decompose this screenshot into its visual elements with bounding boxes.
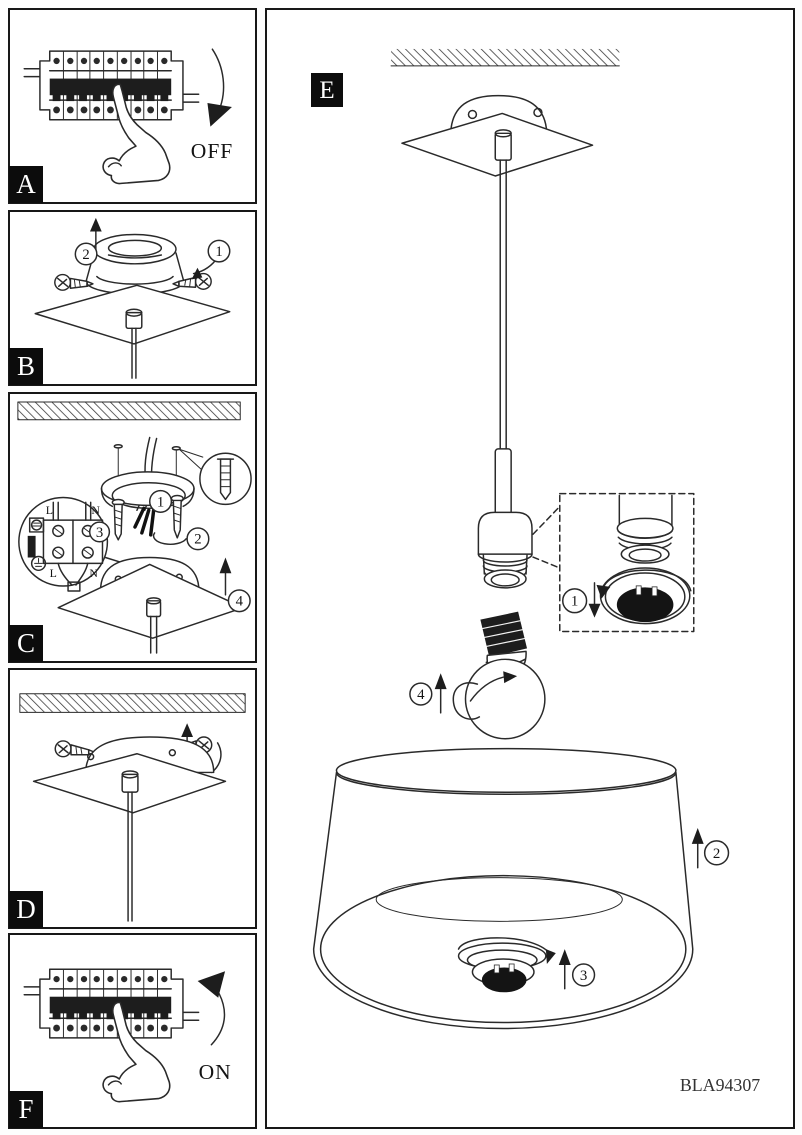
terminal-n-top: N bbox=[91, 503, 100, 517]
ceiling-plate-icon bbox=[402, 113, 593, 176]
screw-right-icon bbox=[173, 274, 211, 290]
rotate-on-arrow-icon bbox=[198, 971, 225, 1044]
step-4-badge: 4 bbox=[228, 590, 250, 612]
ceiling-plate-icon bbox=[34, 754, 226, 921]
shade-ring-detail bbox=[589, 568, 691, 624]
pendant-cord bbox=[495, 160, 511, 514]
svg-text:3: 3 bbox=[580, 968, 587, 984]
on-label: ON bbox=[199, 1060, 232, 1084]
terminal-l-top: L bbox=[46, 503, 53, 517]
step-1-badge: 1 bbox=[208, 240, 230, 262]
terminal-n-bottom: N bbox=[89, 566, 98, 580]
panel-c-illustration: 1 2 L N L bbox=[10, 394, 255, 661]
panel-a: OFF A bbox=[8, 8, 257, 204]
step-1-badge: 1 bbox=[150, 491, 172, 513]
light-bulb-icon bbox=[435, 612, 545, 739]
svg-text:4: 4 bbox=[417, 687, 425, 703]
raise-shade-arrow-icon bbox=[692, 828, 704, 868]
step-2-badge: 2 bbox=[75, 243, 97, 265]
step-1-badge: 1 bbox=[563, 589, 587, 613]
panel-b-label: B bbox=[9, 348, 43, 385]
wall-plug-detail bbox=[200, 453, 251, 504]
ceiling-hatch bbox=[391, 49, 619, 66]
instruction-sheet-page: { "panel_a": { "label": "A", "state_labe… bbox=[0, 0, 802, 1135]
svg-text:4: 4 bbox=[236, 594, 244, 610]
terminal-l-bottom: L bbox=[50, 566, 57, 580]
panel-e-illustration: 1 4 bbox=[267, 10, 793, 1127]
step-3-badge: 3 bbox=[90, 522, 110, 542]
ceiling-hatch bbox=[18, 402, 240, 420]
svg-text:1: 1 bbox=[157, 494, 164, 510]
svg-text:2: 2 bbox=[713, 846, 720, 862]
panel-b: 2 1 B bbox=[8, 210, 257, 386]
part-number: BLA94307 bbox=[680, 1075, 760, 1095]
panel-c: 1 2 L N L bbox=[8, 392, 257, 663]
raise-plate-arrow-icon bbox=[220, 558, 232, 595]
step-2-badge: 2 bbox=[705, 841, 729, 865]
panel-a-illustration: OFF bbox=[10, 10, 255, 202]
panel-d: D bbox=[8, 668, 257, 929]
step-3-badge: 3 bbox=[573, 964, 595, 986]
ceiling-plate-icon bbox=[35, 285, 229, 378]
panel-b-illustration: 2 1 bbox=[10, 212, 255, 384]
lamp-socket-icon bbox=[478, 512, 532, 587]
socket-thread-detail bbox=[617, 496, 673, 563]
panel-e-label: E bbox=[311, 73, 343, 107]
panel-f-illustration: ON bbox=[10, 935, 255, 1127]
svg-text:2: 2 bbox=[82, 247, 89, 263]
panel-e: 1 4 bbox=[265, 8, 795, 1129]
svg-text:1: 1 bbox=[571, 594, 578, 610]
svg-text:1: 1 bbox=[215, 244, 222, 260]
panel-d-label: D bbox=[9, 891, 43, 928]
anchor-screw-left bbox=[112, 499, 124, 539]
circuit-breaker-icon bbox=[24, 969, 198, 1038]
step-4-badge: 4 bbox=[410, 683, 432, 705]
panel-a-label: A bbox=[9, 166, 43, 203]
svg-text:3: 3 bbox=[96, 525, 103, 541]
ceiling-hatch bbox=[20, 694, 245, 713]
black-wires bbox=[135, 508, 154, 535]
off-label: OFF bbox=[191, 139, 233, 163]
circuit-breaker-icon bbox=[24, 51, 198, 120]
panel-c-label: C bbox=[9, 625, 43, 662]
step-2-badge: 2 bbox=[187, 528, 209, 550]
panel-f: ON F bbox=[8, 933, 257, 1129]
svg-text:2: 2 bbox=[194, 532, 201, 548]
panel-d-illustration bbox=[10, 670, 255, 927]
panel-f-label: F bbox=[9, 1091, 43, 1128]
rotate-off-arrow-icon bbox=[207, 49, 231, 126]
